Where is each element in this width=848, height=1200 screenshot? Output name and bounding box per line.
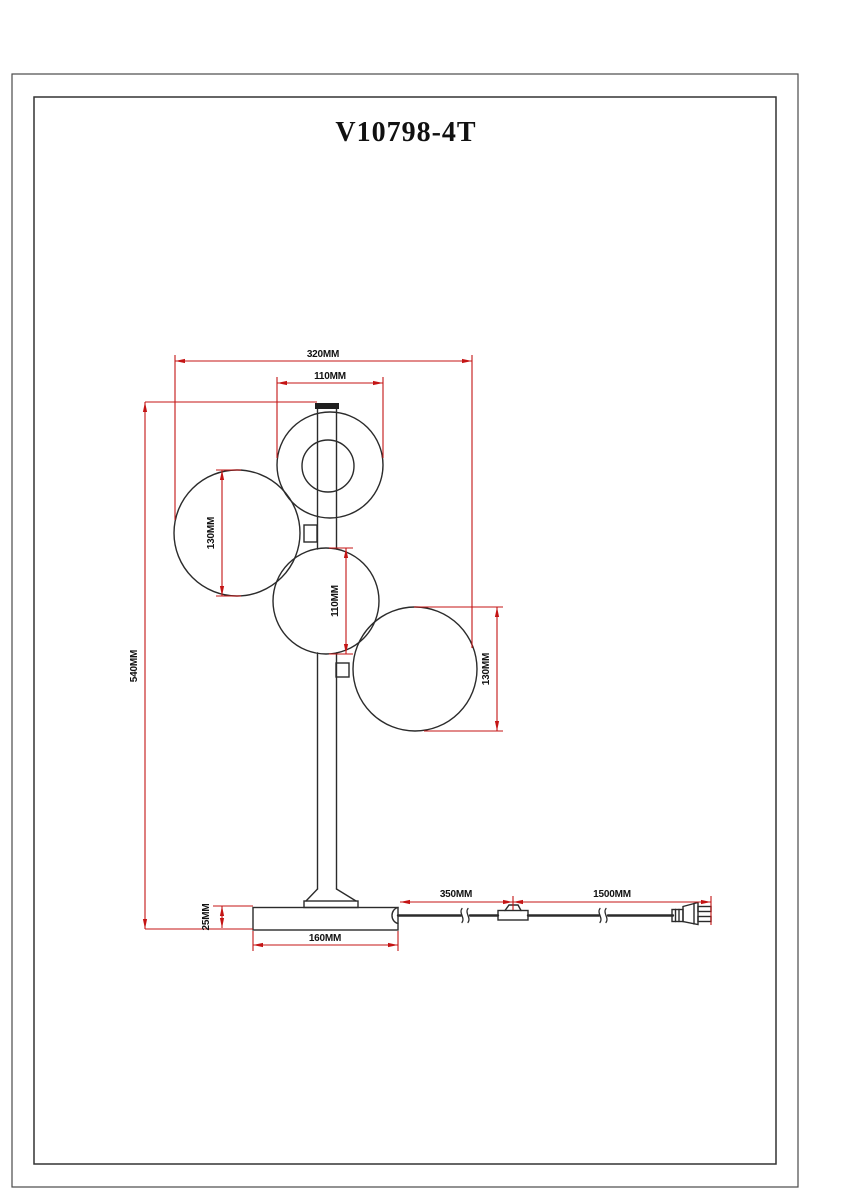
dim-overall-width-label: 320MM <box>307 349 339 360</box>
dim-left-globe-label: 130MM <box>206 517 217 549</box>
plug-prong <box>698 917 711 922</box>
globe-top-ring <box>302 440 354 492</box>
socket-right <box>336 663 349 677</box>
stem-flare <box>306 889 356 901</box>
dimension-lines <box>145 355 711 951</box>
dimension-labels: 320MM 110MM 540MM 130MM 110MM 130MM 25MM… <box>129 349 631 944</box>
lamp-technical-drawing: V10798-4T <box>0 0 848 1200</box>
dim-right-globe-label: 130MM <box>481 653 492 685</box>
drawing-page: V10798-4T <box>0 0 848 1200</box>
lamp-pole <box>318 409 337 889</box>
cord-break-icon <box>467 909 469 923</box>
dim-overall-height-label: 540MM <box>129 650 140 682</box>
dim-cord-to-plug-label: 1500MM <box>593 889 631 900</box>
dim-cord-to-switch-label: 350MM <box>440 889 472 900</box>
dim-top-globe-label: 110MM <box>314 371 346 382</box>
stem-disc <box>304 901 358 908</box>
dim-base-width-label: 160MM <box>309 933 341 944</box>
drawing-frame-outer <box>12 74 798 1187</box>
dim-middle-globe-label: 110MM <box>330 585 341 617</box>
globe-left <box>174 470 300 596</box>
globe-right <box>353 607 477 731</box>
globe-top <box>277 412 383 518</box>
plug-body <box>683 903 698 925</box>
pole-cap <box>315 403 339 409</box>
lamp-base <box>253 908 398 931</box>
socket-left <box>304 525 317 542</box>
power-plug <box>672 903 711 925</box>
dim-base-thickness-label: 25MM <box>201 904 212 931</box>
globe-middle <box>273 548 379 654</box>
plug-prong <box>698 907 711 912</box>
product-title: V10798-4T <box>335 117 476 148</box>
cord-break-icon <box>605 909 607 923</box>
